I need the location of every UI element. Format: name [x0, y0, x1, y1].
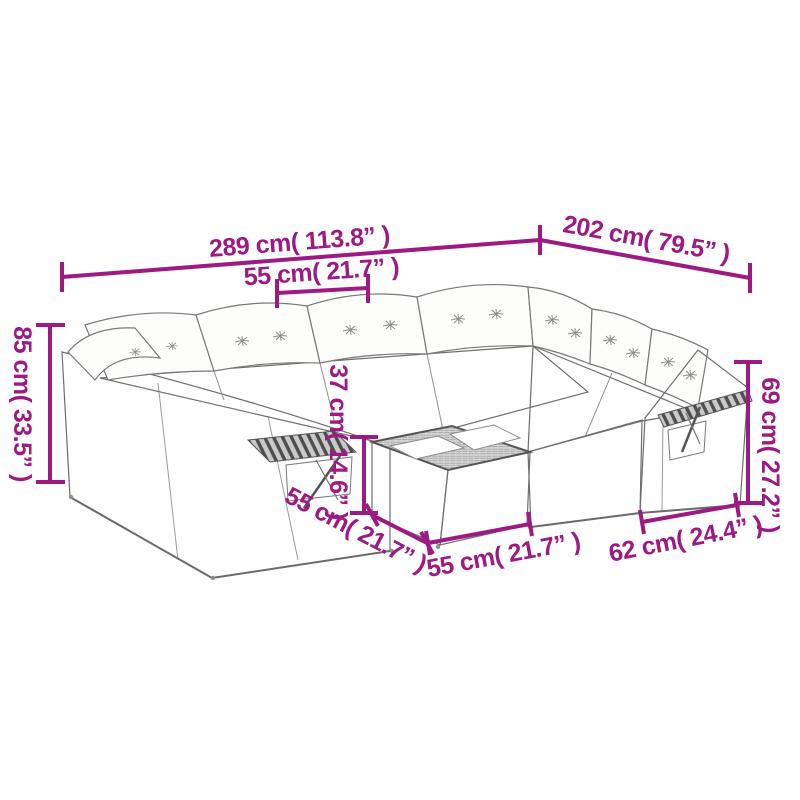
dimension-line-table-height: [350, 437, 378, 513]
dimension-diagram: 289 cm( 113.8” ) 202 cm( 79.5” ) 55 cm( …: [0, 0, 800, 800]
sofa-right-front-panel: [528, 420, 642, 527]
dim-label-table-width: 55 cm( 21.7” ): [424, 527, 582, 583]
dim-label-arm-height-right: 69 cm( 27.2” ): [756, 377, 784, 533]
dim-label-table-height: 37 cm( 14.6” ): [324, 364, 352, 520]
product-image: 289 cm( 113.8” ) 202 cm( 79.5” ) 55 cm( …: [0, 0, 800, 800]
dim-label-back-height-left: 85 cm( 33.5” ): [8, 326, 36, 482]
back-cushions-right: [528, 287, 708, 408]
dimension-line-back-height-left: [36, 325, 65, 482]
back-cushions-left: [85, 285, 533, 380]
right-arm-slat-tray: [658, 390, 752, 460]
dim-label-end-section-width: 62 cm( 24.4” ): [606, 511, 764, 568]
